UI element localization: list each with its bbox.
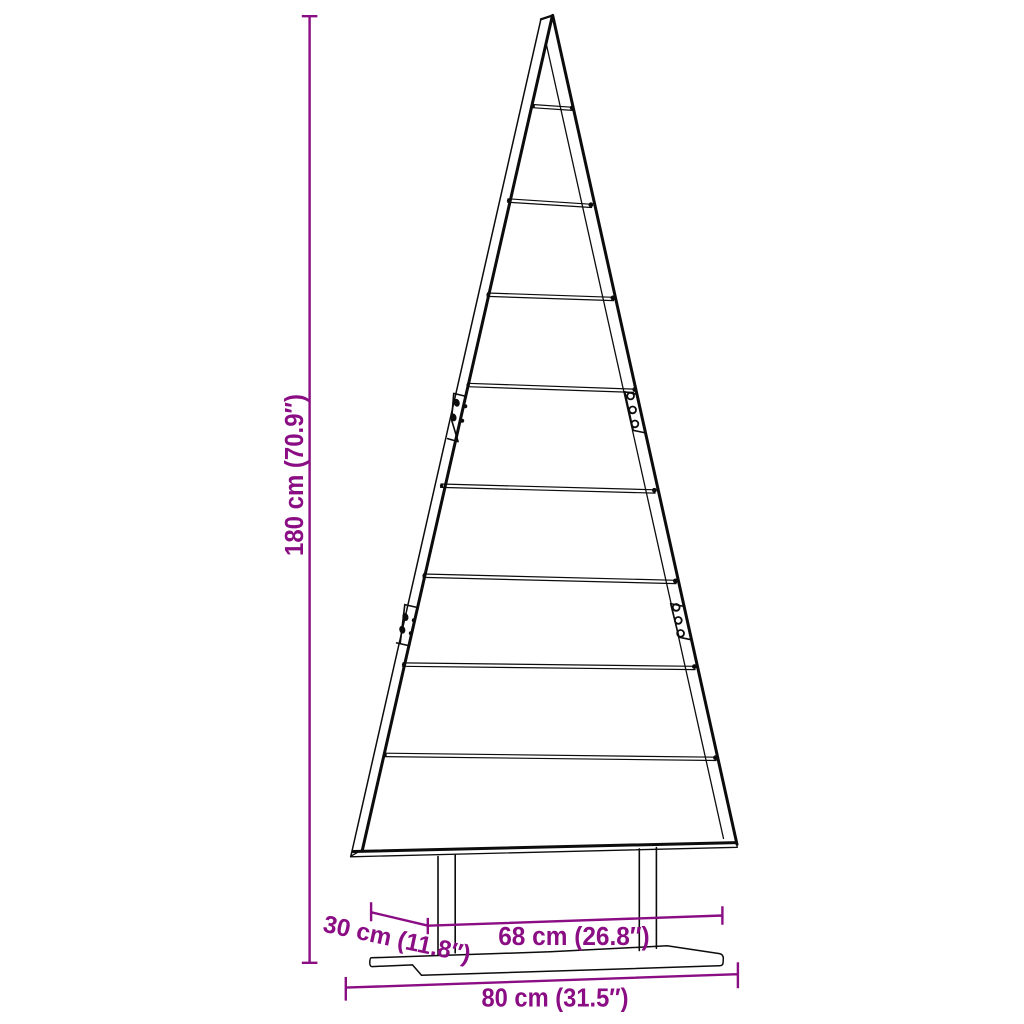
svg-text:180 cm (70.9″): 180 cm (70.9″) (281, 394, 309, 556)
svg-text:68 cm (26.8″): 68 cm (26.8″) (498, 923, 650, 951)
svg-text:80 cm (31.5″): 80 cm (31.5″) (482, 985, 629, 1013)
